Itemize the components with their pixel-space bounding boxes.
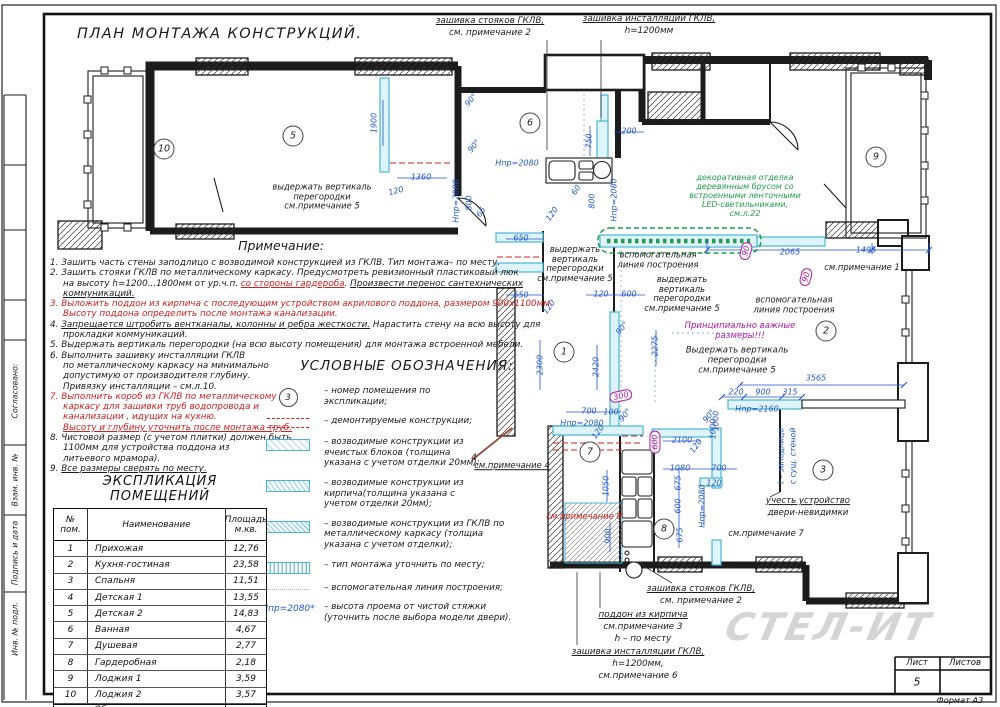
legend-item: – тип монтажа уточнить по месту; [262, 560, 552, 574]
header-room-area: Площадь м.кв. [226, 509, 266, 540]
sidebar-label: Инв. № подл. [11, 602, 20, 656]
cell-room-name: Гардеробная [88, 655, 226, 670]
cell-room-number: 9 [54, 671, 88, 686]
sidebar-label: Взам. инв. № [11, 454, 20, 507]
cell-room-name: Лоджия 1 [88, 671, 226, 686]
table-row: 5Детская 214,83 [54, 606, 266, 622]
legend-item: – демонтируемые конструкции; [262, 416, 552, 428]
shower-tray [565, 503, 622, 563]
explication-section: ЭКСПЛИКАЦИЯ ПОМЕЩЕНИЙ № пом. Наименовани… [53, 474, 267, 707]
legend-item: – возводимые конструкции из ячеистых бло… [262, 437, 552, 469]
note-line: 5. Выдержать вертикаль перегородки (на в… [50, 340, 512, 350]
legend-symbol-vert [266, 562, 310, 574]
notes-title: Примечание: [50, 238, 512, 253]
legend-symbol-hpr: Hпр=2080* [261, 604, 314, 614]
cell-room-area: 11,51 [226, 574, 266, 589]
legend-item-text: – возводимые конструкции из кирпича(толщ… [324, 478, 464, 510]
sheet-label: Лист [906, 658, 928, 668]
cell-room-area: 3,59 [226, 671, 266, 686]
cell-room-name: Лоджия 2 [88, 688, 226, 703]
table-row: 4Детская 113,55 [54, 590, 266, 606]
cell-room-number: 4 [54, 590, 88, 605]
cell-room-number: 5 [54, 606, 88, 621]
note-line: 3. Выложить поддон из кирпича с последую… [50, 299, 512, 309]
sidebar-label: Согласовано: [11, 364, 20, 419]
cell-room-name: Спальня [88, 574, 226, 589]
header-room-number: № пом. [54, 509, 88, 540]
cell-room-name: Кухня-гостиная [88, 557, 226, 572]
explication-table: № пом. Наименование Площадь м.кв. 1Прихо… [53, 508, 267, 707]
drawing-sheet: ПЛАН МОНТАЖА КОНСТРУКЦИЙ. зашивка стояко… [0, 0, 1000, 707]
legend-item-text: – вспомогательная линия построения; [324, 583, 503, 594]
cell-room-area: 2,18 [226, 655, 266, 670]
cell-room-area: 3,57 [226, 688, 266, 703]
table-body: 1Прихожая12,762Кухня-гостиная23,583Спаль… [54, 541, 266, 704]
cell-room-number: 7 [54, 639, 88, 654]
legend-item: – возводимые конструкции из кирпича(толщ… [262, 478, 552, 510]
legend-item-text: – демонтируемые конструкции; [324, 416, 472, 427]
note-line: Высоту поддона определить после монтажа … [50, 309, 512, 319]
note-line: 4. Запрещается штробить вентканалы, коло… [50, 320, 512, 330]
sheets-label: Листов [949, 658, 981, 668]
legend-symbol-brick [266, 480, 310, 492]
legend-item-text: – тип монтажа уточнить по месту; [324, 560, 485, 571]
cell-room-name: Детская 1 [88, 590, 226, 605]
cell-room-area: 2,77 [226, 639, 266, 654]
legend-items: 3– номер помещения по экспликации;– демо… [262, 386, 552, 623]
cell-room-number: 10 [54, 688, 88, 703]
cell-room-number: 3 [54, 574, 88, 589]
table-row: 7Душевая2,77 [54, 639, 266, 655]
sidebar-label: Подпись и дата [11, 521, 20, 586]
cell-room-name: Прихожая [88, 541, 226, 556]
cell-room-name: Ванная [88, 622, 226, 637]
cell-room-name: Душевая [88, 639, 226, 654]
legend-symbol-num: 3 [279, 388, 298, 407]
legend-item-text: – высота проема от чистой стяжки (уточни… [324, 602, 511, 623]
legend-item: 3– номер помещения по экспликации; [262, 386, 552, 407]
table-row: 9Лоджия 13,59 [54, 671, 266, 687]
note-line: 2. Зашить стояки ГКЛВ по металлическому … [50, 268, 512, 278]
table-row: 1Прихожая12,76 [54, 541, 266, 557]
page-title: ПЛАН МОНТАЖА КОНСТРУКЦИЙ. [77, 26, 363, 42]
legend-item: – вспомогательная линия построения; [262, 583, 552, 594]
legend-item: Hпр=2080*– высота проема от чистой стяжк… [262, 602, 552, 623]
legend-title: УСЛОВНЫЕ ОБОЗНАЧЕНИЯ: [262, 358, 552, 374]
explication-title: ЭКСПЛИКАЦИЯ ПОМЕЩЕНИЙ [53, 474, 267, 504]
legend-item: – возводимые конструкции из ГКЛВ по мета… [262, 519, 552, 551]
legend-item-text: – возводимые конструкции из ГКЛВ по мета… [324, 519, 504, 551]
table-header-row: № пом. Наименование Площадь м.кв. [54, 509, 266, 541]
legend-symbol-gklv [266, 521, 310, 533]
cell-room-area: 12,76 [226, 541, 266, 556]
legend-item-text: – номер помещения по экспликации; [324, 386, 430, 407]
table-row: 2Кухня-гостиная23,58 [54, 557, 266, 573]
legend-symbol-demo [267, 418, 309, 428]
cell-room-number: 8 [54, 655, 88, 670]
legend-symbol-blocks [266, 439, 310, 451]
cell-room-number: 2 [54, 557, 88, 572]
cell-room-area: 23,58 [226, 557, 266, 572]
cell-room-area: 14,83 [226, 606, 266, 621]
note-line: прокладки коммуникаций. [50, 330, 512, 340]
format-label: Формат А3 [930, 695, 990, 705]
table-row: 3Спальня11,51 [54, 574, 266, 590]
sheet-number: 5 [914, 676, 921, 689]
legend-symbol-dots [267, 589, 309, 591]
table-row: 6Ванная4,67 [54, 622, 266, 638]
table-row: 8Гардеробная2,18 [54, 655, 266, 671]
note-line: 1. Зашить часть стены заподлицо с возвод… [50, 258, 512, 268]
note-line: коммуникаций. [50, 289, 512, 299]
cell-room-area: 13,55 [226, 590, 266, 605]
cell-room-number: 6 [54, 622, 88, 637]
header-room-name: Наименование [88, 509, 226, 540]
cell-room-number: 1 [54, 541, 88, 556]
table-row: 10Лоджия 23,57 [54, 688, 266, 704]
legend-section: УСЛОВНЫЕ ОБОЗНАЧЕНИЯ: 3– номер помещения… [262, 358, 552, 632]
cell-room-name: Детская 2 [88, 606, 226, 621]
legend-item-text: – возводимые конструкции из ячеистых бло… [324, 437, 480, 469]
cell-room-area: 4,67 [226, 622, 266, 637]
note-line: на высоту h=1200...1800мм от ур.ч.п. со … [50, 279, 512, 289]
